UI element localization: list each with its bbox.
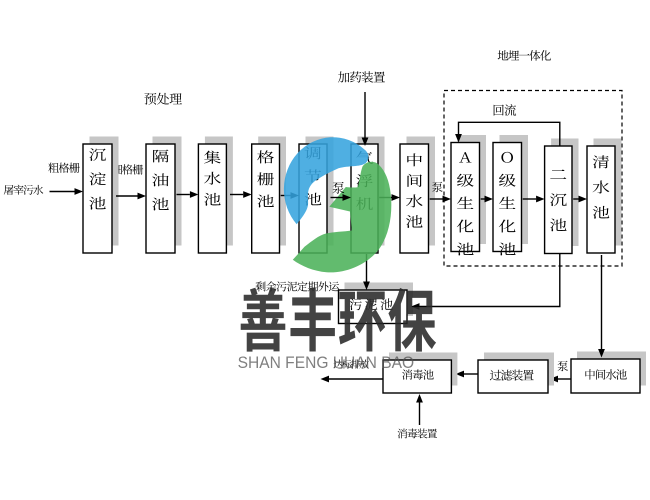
svg-text:SHAN FENG HUAN BAO: SHAN FENG HUAN BAO	[238, 354, 415, 372]
